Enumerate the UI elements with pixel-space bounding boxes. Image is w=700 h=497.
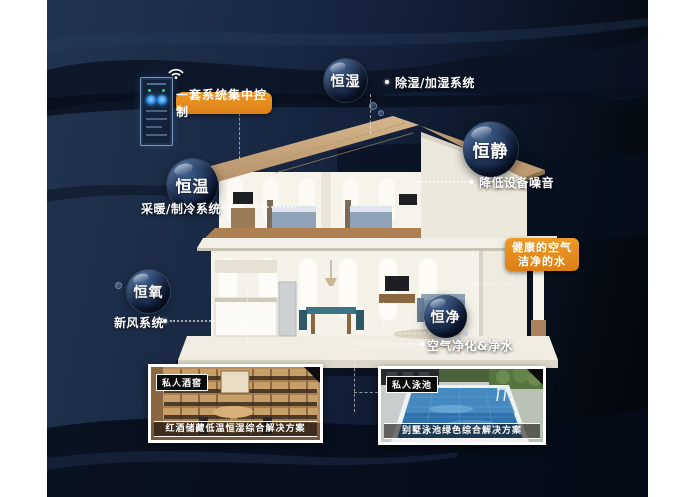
- bubble-humidity-label: 恒湿: [331, 71, 361, 91]
- upper-partition: [321, 172, 331, 228]
- wine-cellar-caption: 红酒储藏低温恒湿综合解决方案: [154, 421, 317, 437]
- health-callout-line1: 健康的空气: [512, 241, 572, 255]
- health-callout-line2: 洁净的水: [518, 255, 566, 269]
- house-upper-floor: [219, 172, 421, 228]
- wifi-icon: [167, 65, 185, 79]
- mini-bubble-icon: [369, 102, 377, 110]
- wine-cellar-card: 私人酒窖 红酒储藏低温恒湿综合解决方案: [148, 364, 323, 443]
- connector-callout-v: [512, 270, 513, 284]
- pool-photo: 私人泳池 别墅泳池绿色综合解决方案: [381, 369, 543, 442]
- pool-badge: 私人泳池: [386, 376, 438, 393]
- connector-temp-house: [228, 206, 296, 208]
- control-dial-left: [146, 95, 156, 105]
- connector-purity-zone-v: [383, 302, 384, 333]
- control-dial-right: [157, 95, 167, 105]
- wine-cellar-badge: 私人酒窖: [156, 374, 208, 391]
- label-oxygen-system: 新风系统: [114, 314, 164, 331]
- central-control-label: 一套系统集中控制: [176, 86, 272, 120]
- connector-callout-h: [468, 284, 512, 285]
- connector-cards-v: [354, 348, 355, 412]
- mini-bubble-icon: [115, 282, 122, 289]
- pool-card: 私人泳池 别墅泳池绿色综合解决方案: [378, 366, 546, 445]
- bullet-dot: [420, 342, 424, 346]
- corner-ribbon-icon: [527, 369, 543, 385]
- kitchen-upper-cabinets: [215, 260, 277, 273]
- label-quiet-system: 降低设备噪音: [479, 174, 554, 191]
- mini-bubble-icon: [378, 110, 384, 116]
- bubble-oxygen-label: 恒氧: [134, 282, 164, 302]
- label-purity-system: 空气净化&净水: [427, 337, 513, 354]
- bullet-dot: [163, 319, 167, 323]
- bubble-purity: 恒净: [424, 295, 467, 338]
- connector-oxygen-zone: [247, 278, 248, 342]
- control-panel-screen: [143, 80, 170, 143]
- wine-cellar-photo: 私人酒窖 红酒储藏低温恒湿综合解决方案: [151, 367, 320, 440]
- label-temperature-system: 采暖/制冷系统: [141, 200, 221, 217]
- pool-caption: 别墅泳池绿色综合解决方案: [384, 423, 540, 439]
- infographic-stage: 一套系统集中控制 恒湿 恒静 恒温 恒氧 恒净 除湿/加湿系统 降低设备噪音 采…: [0, 0, 700, 497]
- bubble-quiet: 恒静: [463, 122, 518, 177]
- bubble-humidity: 恒湿: [324, 59, 367, 102]
- connector-humidity-house: [370, 94, 371, 134]
- bullet-dot: [221, 205, 225, 209]
- label-humidity-system: 除湿/加湿系统: [395, 74, 475, 91]
- corner-ribbon-icon: [304, 367, 320, 383]
- bubble-temperature-label: 恒温: [175, 173, 209, 197]
- connector-pool-card: [354, 392, 378, 393]
- smart-control-panel: [140, 77, 173, 146]
- central-control-tag: 一套系统集中控制: [176, 92, 272, 114]
- bubble-quiet-label: 恒静: [473, 137, 509, 162]
- bullet-dot: [385, 80, 389, 84]
- bullet-dot: [469, 180, 473, 184]
- mini-bubble-icon: [463, 331, 468, 336]
- connector-quiet-house: [406, 181, 466, 183]
- health-callout: 健康的空气 洁净的水: [505, 238, 579, 271]
- connector-oxygen-house: [170, 320, 246, 322]
- bubble-purity-label: 恒净: [431, 307, 461, 327]
- kitchen-cabinets: [215, 298, 277, 336]
- kitchen-fridge: [279, 282, 296, 336]
- connector-purity-house: [352, 343, 418, 345]
- bubble-oxygen: 恒氧: [127, 270, 170, 313]
